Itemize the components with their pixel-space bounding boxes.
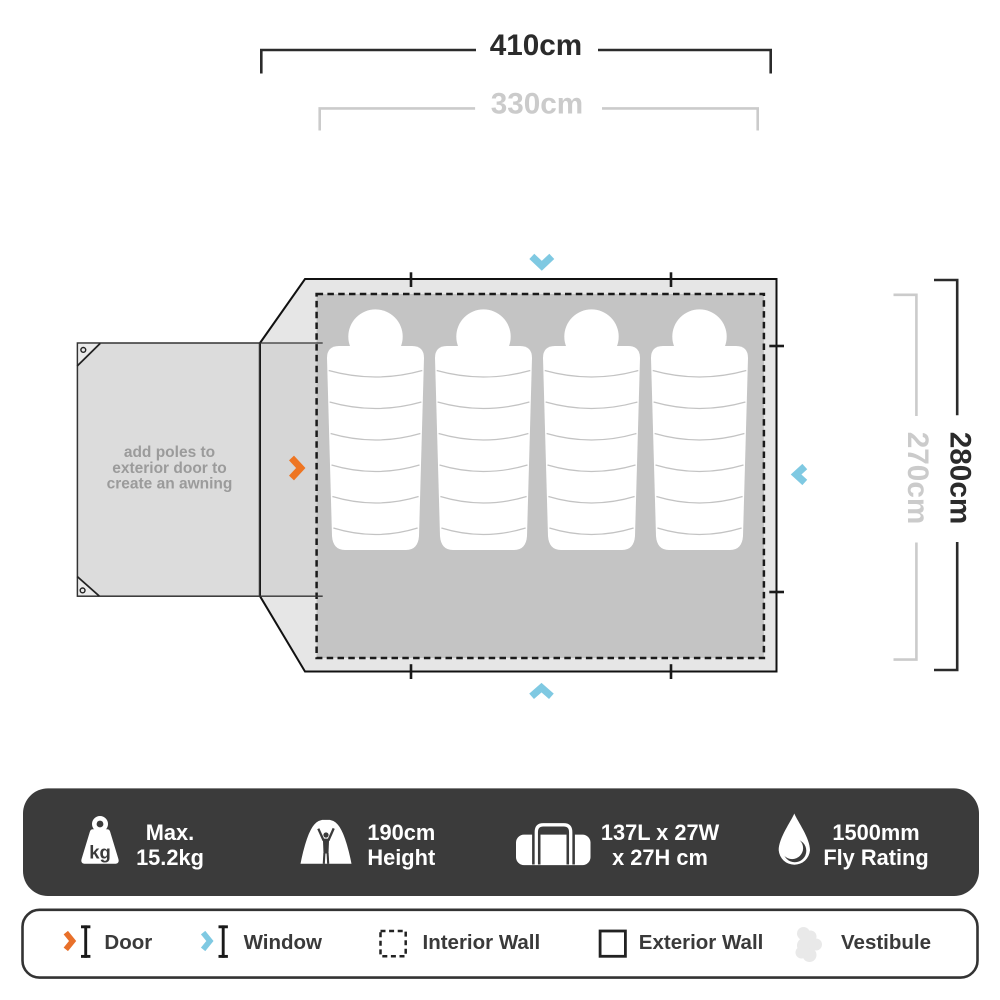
svg-text:270cm: 270cm (901, 432, 934, 524)
svg-text:Height: Height (367, 845, 435, 870)
svg-text:Vestibule: Vestibule (841, 931, 931, 954)
svg-text:Door: Door (104, 931, 152, 954)
svg-text:Interior Wall: Interior Wall (423, 931, 541, 954)
svg-text:kg: kg (89, 842, 111, 863)
svg-text:x 27H cm: x 27H cm (612, 845, 708, 870)
svg-text:190cm: 190cm (367, 820, 435, 845)
svg-text:add poles to: add poles to (124, 444, 215, 461)
svg-text:Exterior Wall: Exterior Wall (639, 931, 764, 954)
svg-text:1500mm: 1500mm (832, 820, 919, 845)
svg-text:create an awning: create an awning (107, 475, 233, 492)
svg-text:exterior door to: exterior door to (112, 460, 227, 477)
svg-text:410cm: 410cm (490, 29, 582, 62)
svg-text:280cm: 280cm (944, 432, 977, 524)
svg-text:Window: Window (244, 931, 322, 954)
svg-text:Fly Rating: Fly Rating (823, 845, 928, 870)
svg-text:330cm: 330cm (491, 88, 583, 121)
svg-text:137L x 27W: 137L x 27W (601, 820, 720, 845)
svg-text:Max.: Max. (146, 820, 194, 845)
svg-text:15.2kg: 15.2kg (136, 845, 204, 870)
